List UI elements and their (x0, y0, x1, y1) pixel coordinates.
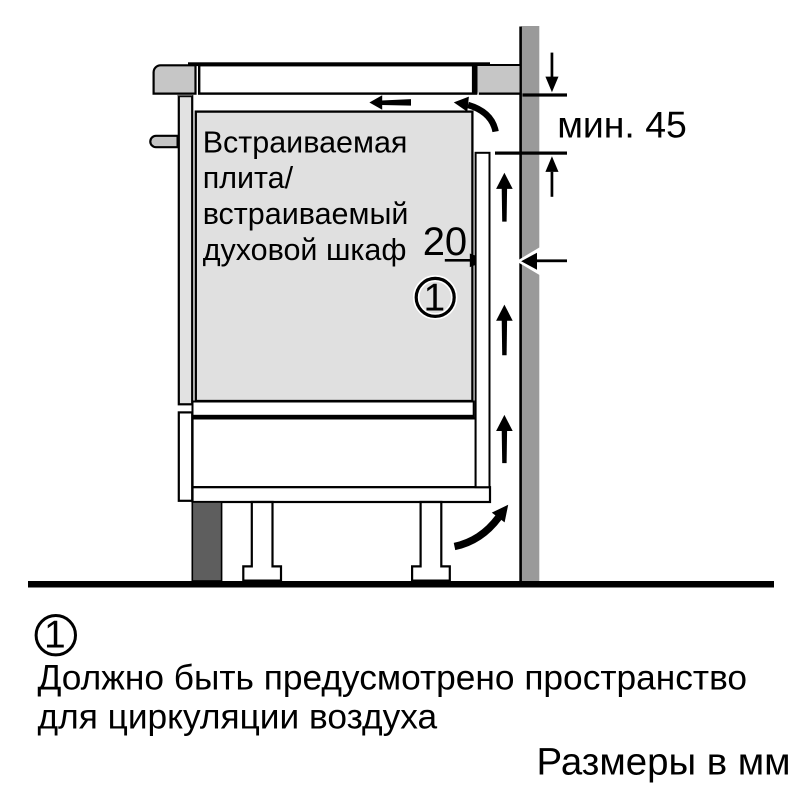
svg-text:Встраиваемая: Встраиваемая (203, 125, 408, 159)
svg-text:мин. 45: мин. 45 (557, 104, 687, 146)
svg-text:20: 20 (423, 220, 468, 264)
svg-text:встраиваемый: встраиваемый (203, 197, 409, 231)
svg-text:для циркуляции воздуха: для циркуляции воздуха (38, 697, 438, 736)
svg-text:плита/: плита/ (203, 161, 294, 195)
svg-text:Должно быть предусмотрено прос: Должно быть предусмотрено пространство (38, 659, 748, 698)
svg-text:1: 1 (424, 277, 446, 320)
svg-text:1: 1 (44, 614, 66, 657)
svg-text:духовой шкаф: духовой шкаф (203, 233, 407, 267)
svg-text:Размеры в мм: Размеры в мм (537, 740, 791, 783)
